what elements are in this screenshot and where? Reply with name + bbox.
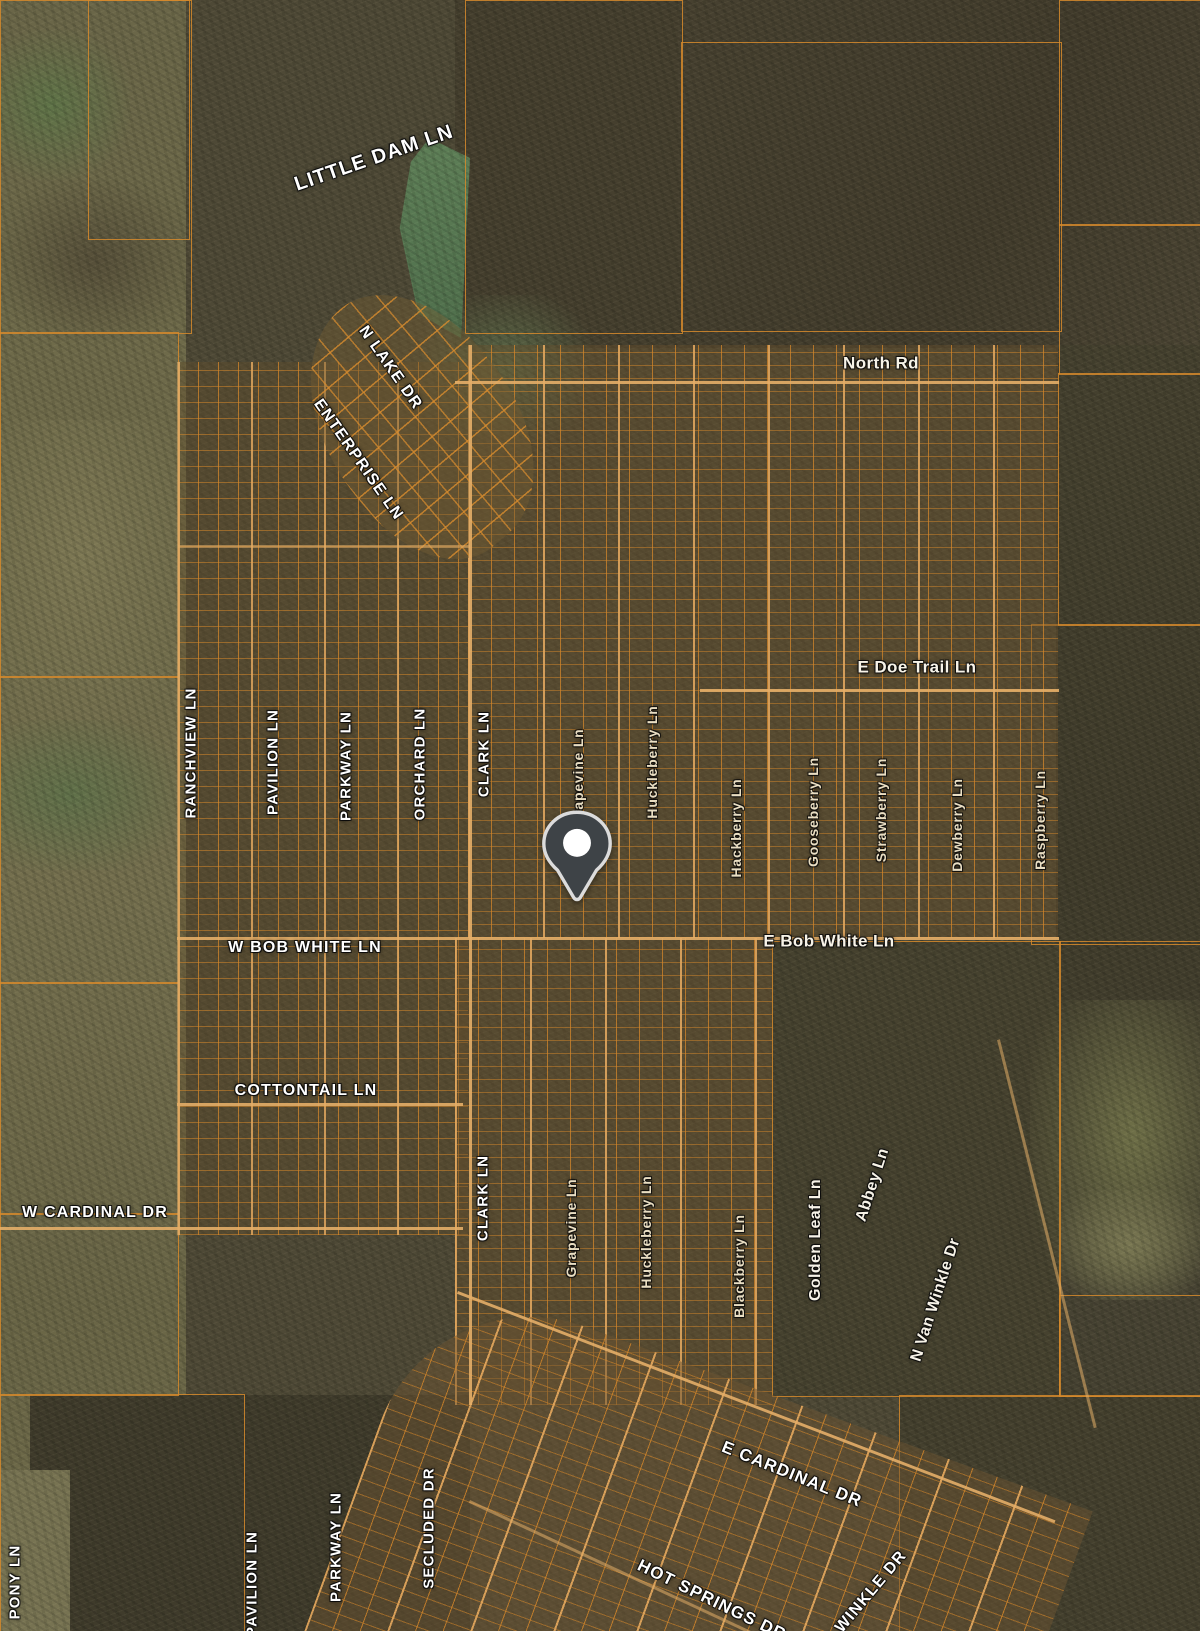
street-label-clark-ln-n: CLARK LN	[477, 711, 492, 797]
parcel-boundary	[1058, 373, 1200, 626]
parcel-grid-fan-south	[298, 1272, 1093, 1631]
road-upper-west	[178, 545, 470, 548]
parcel-boundary	[1059, 941, 1200, 1397]
street-label-strawberry-ln: Strawberry Ln	[874, 758, 888, 863]
street-label-clark-ln-s: CLARK LN	[476, 1155, 491, 1241]
terrain-left-band	[0, 0, 186, 1631]
parcel-grid-central-south	[455, 938, 772, 1405]
street-label-e-cardinal-dr: E CARDINAL DR	[720, 1438, 865, 1510]
road-w-cardinal	[0, 1227, 463, 1230]
street-label-blackberry-ln: Blackberry Ln	[732, 1214, 746, 1318]
road-van-winkle	[997, 1039, 1097, 1428]
road-ranchview	[177, 362, 180, 1235]
terrain-forest-topleft	[0, 180, 190, 340]
terrain-golf-light	[1030, 1000, 1200, 1300]
street-label-little-dam-ln: LITTLE DAM LN	[292, 121, 456, 194]
road-doe-trail	[700, 689, 1059, 692]
road-e-cardinal	[457, 1291, 1056, 1523]
street-label-raspberry-ln: Raspberry Ln	[1033, 770, 1047, 870]
parcel-boundary	[1059, 0, 1200, 226]
terrain-light-right-low	[1058, 1190, 1200, 1300]
street-label-cottontail-ln: COTTONTAIL LN	[235, 1083, 378, 1099]
road-north-rd	[455, 381, 1059, 384]
road-cottontail	[177, 1103, 463, 1106]
street-label-parkway-ln: PARKWAY LN	[339, 711, 354, 821]
road-hot-springs	[469, 1500, 1014, 1631]
pond	[396, 138, 470, 338]
street-label-e-bob-white-ln: E Bob White Ln	[763, 933, 894, 950]
street-label-ranchview-ln: RANCHVIEW LN	[184, 687, 199, 818]
parcel-boundary	[0, 0, 192, 334]
road-bob-white	[177, 937, 1059, 940]
street-label-secluded-dr: SECLUDED DR	[422, 1467, 437, 1589]
parcel-boundary	[0, 676, 179, 984]
street-label-north-rd: North Rd	[843, 355, 919, 372]
street-label-grapevine-ln-s: Grapevine Ln	[564, 1178, 578, 1277]
street-label-gooseberry-ln: Gooseberry Ln	[806, 757, 820, 867]
parcel-boundary	[899, 1395, 1200, 1631]
street-label-huckleberry-ln-n: Huckleberry Ln	[645, 705, 659, 818]
street-label-pavilion-ln: PAVILION LN	[266, 709, 281, 815]
parcel-grid-fan-lake	[257, 257, 583, 594]
parcel-boundary	[1059, 1295, 1200, 1397]
location-pin[interactable]	[536, 808, 618, 905]
street-label-w-cardinal-dr: W CARDINAL DR	[22, 1205, 168, 1221]
street-label-pavilion-ln-s: PAVILION LN	[245, 1531, 260, 1631]
parcel-boundary	[465, 0, 683, 334]
pin-dot	[563, 829, 591, 857]
street-label-n-lake-dr: N LAKE DR	[355, 323, 424, 412]
parcel-grid-west	[178, 362, 468, 1235]
street-label-golden-leaf-ln: Golden Leaf Ln	[808, 1179, 824, 1301]
map-canvas[interactable]: LITTLE DAM LNN LAKE DRENTERPRISE LNNorth…	[0, 0, 1200, 1631]
terrain-forest-topright	[678, 0, 1200, 348]
parcel-boundary	[0, 1394, 245, 1631]
street-label-n-van-winkle-dr: N Van Winkle Dr	[909, 1236, 964, 1363]
parcel-boundary	[1031, 624, 1200, 945]
parcel-boundary	[681, 42, 1062, 332]
street-label-enterprise-ln: ENTERPRISE LN	[310, 397, 405, 524]
street-label-hot-springs-dr: HOT SPRINGS DR	[635, 1557, 789, 1631]
terrain-right-band	[1056, 345, 1200, 1631]
terrain-field-green-2	[0, 720, 176, 870]
parcel-boundary	[1059, 224, 1200, 375]
terrain-field-midleft	[0, 420, 180, 720]
terrain-wooded-parcel-se	[772, 941, 1060, 1397]
street-label-abbey-ln: Abbey Ln	[854, 1146, 893, 1223]
terrain-bottomleft-forest	[30, 1395, 470, 1631]
road-clark	[469, 345, 472, 1405]
street-label-pony-ln: PONY LN	[8, 1545, 23, 1620]
terrain-green-right-of-fan	[420, 295, 590, 445]
parcel-boundary	[88, 0, 190, 240]
street-label-e-doe-trail-ln: E Doe Trail Ln	[858, 659, 977, 676]
terrain-bottomright-forest	[899, 1390, 1200, 1631]
street-label-van-winkle-dr-s: VAN WINKLE DR	[806, 1548, 910, 1631]
street-label-orchard-ln: ORCHARD LN	[413, 708, 428, 821]
parcel-boundary	[0, 1213, 179, 1396]
terrain-field-green-1	[0, 30, 130, 180]
parcel-boundary	[0, 982, 179, 1215]
terrain-bottomleft-light	[0, 1470, 70, 1631]
parcel-boundary	[772, 941, 1061, 1397]
street-label-dewberry-ln: Dewberry Ln	[950, 778, 964, 872]
street-label-w-bob-white-ln: W BOB WHITE LN	[228, 940, 382, 956]
street-label-huckleberry-ln-s: Huckleberry Ln	[639, 1175, 653, 1288]
terrain-forest-topcenter	[455, 0, 690, 348]
street-label-hackberry-ln: Hackberry Ln	[729, 778, 743, 877]
parcel-boundary	[0, 332, 179, 678]
street-label-parkway-ln-s: PARKWAY LN	[329, 1492, 344, 1602]
